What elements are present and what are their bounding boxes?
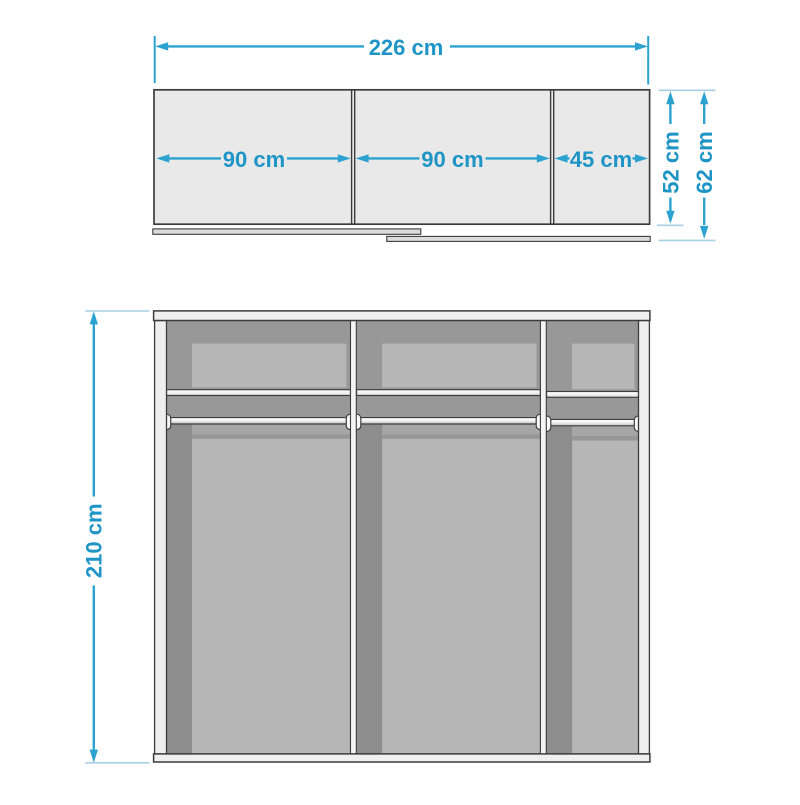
svg-text:90 cm: 90 cm — [421, 147, 483, 172]
svg-text:210 cm: 210 cm — [81, 503, 106, 578]
svg-text:62 cm: 62 cm — [692, 131, 717, 193]
svg-text:90 cm: 90 cm — [223, 147, 285, 172]
svg-text:226 cm: 226 cm — [369, 35, 444, 60]
svg-text:45 cm: 45 cm — [570, 147, 632, 172]
svg-text:52 cm: 52 cm — [658, 131, 683, 193]
